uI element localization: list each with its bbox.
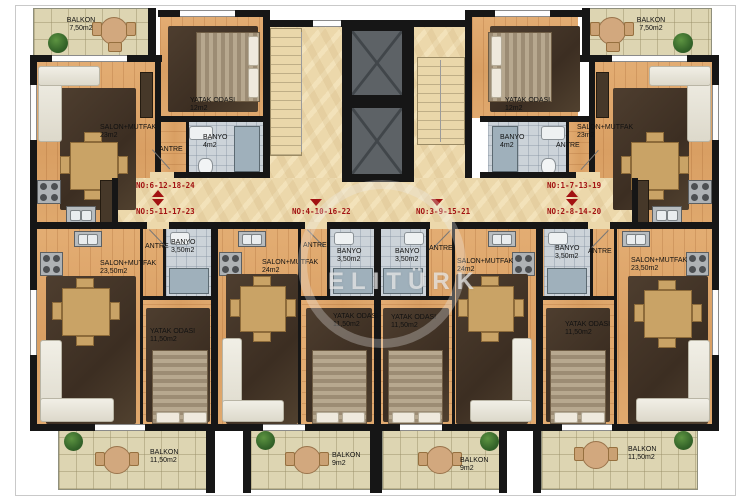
wall (540, 296, 616, 300)
window (400, 424, 442, 431)
window (95, 424, 145, 431)
b4-dining-table (644, 290, 692, 338)
label-tl-yatak: YATAK ODASI12m2 (190, 97, 235, 113)
label-b4-antre: ANTRE (588, 248, 612, 256)
wall (344, 98, 412, 103)
tl-kitchen-sink (66, 206, 96, 223)
door-gap-b1 (147, 222, 169, 229)
staircase-right (417, 57, 465, 145)
window (180, 10, 235, 17)
label-b2-salon: SALON+MUTFAK24m2 (262, 259, 318, 275)
unit-arrow-down (431, 199, 443, 206)
wall (112, 178, 118, 226)
tr-sofa-chaise (649, 66, 711, 86)
wall (155, 60, 161, 178)
tr-bath-sink (541, 126, 565, 140)
wall (243, 424, 251, 493)
label-b3-balkon: BALKON9m2 (460, 457, 488, 473)
b1-chair (110, 302, 120, 320)
b2-balcony-chair (319, 452, 329, 466)
label-b4-balkon: BALKON11,50m2 (628, 446, 656, 462)
wall (582, 8, 590, 60)
b1-chair (52, 302, 62, 320)
b1-kitchen-sink (74, 231, 102, 247)
tl-balcony-plant (48, 33, 68, 53)
label-b2-antre: ANTRE (303, 242, 327, 250)
wall (499, 424, 507, 493)
b3-stove (512, 252, 535, 276)
b1-bed-pillow (156, 412, 180, 423)
window (263, 424, 305, 431)
tr-balcony-chair (590, 22, 600, 36)
label-tr-banyo: BANYO4m2 (500, 134, 525, 150)
label-b3-yatak: YATAK ODASI11,50m2 (391, 314, 436, 330)
label-tl-salon: SALON+MUTFAK23m2 (100, 124, 156, 140)
label-b3-banyo: BANYO3,50m2 (395, 248, 420, 264)
wall (140, 229, 143, 429)
label-tl-antre: ANTRE (159, 146, 183, 154)
b1-sofa-chaise (40, 398, 114, 422)
b4-balcony-table (582, 441, 610, 469)
window (495, 10, 550, 17)
tr-kitchen-sink (652, 206, 682, 223)
label-tr-yatak: YATAK ODASI12m2 (505, 97, 550, 113)
b4-balcony-plant (674, 431, 693, 450)
wall (186, 120, 189, 176)
b2-balcony-plant (256, 431, 275, 450)
tr-bed-pillow (491, 36, 502, 66)
wall (536, 222, 543, 431)
label-b4-yatak: YATAK ODASI11,50m2 (565, 321, 610, 337)
b4-bed-pillow (554, 412, 578, 423)
wall (266, 20, 472, 27)
b3-balcony-plant (480, 432, 499, 451)
label-tl-banyo: BANYO4m2 (203, 134, 228, 150)
wall (632, 178, 638, 226)
unit-arrow-up (152, 190, 164, 197)
label-b1-antre: ANTRE (145, 243, 169, 251)
b1-shower (169, 268, 209, 294)
b4-kitchen-sink (622, 231, 650, 247)
door-gap-b2 (305, 222, 327, 229)
wall (465, 10, 472, 178)
tr-balcony-plant (673, 33, 693, 53)
tl-sofa-chaise (38, 66, 100, 86)
tl-bed-pillow (248, 68, 259, 98)
b2-bed-pillow (342, 412, 365, 423)
tl-tv-unit (140, 72, 153, 118)
elevator-shaft-2 (347, 103, 407, 179)
b4-bath-sink (548, 232, 568, 245)
tl-chair (60, 156, 70, 174)
unit-label-4-10-16-22: NO:4-10-16-22 (292, 207, 351, 216)
b2-chair (230, 299, 240, 317)
tr-chair (621, 156, 631, 174)
label-tr-salon: SALON+MUTFAK23m2 (577, 124, 633, 140)
b4-bed-pillow (581, 412, 605, 423)
label-tr-antre: ANTRE (556, 142, 580, 150)
b4-stove (686, 252, 709, 276)
wall (426, 229, 429, 297)
b2-chair (253, 276, 271, 286)
floor-plan: BALKON7,50m2 SALON+MUTFAK23m2 YATAK ODAS… (0, 0, 750, 500)
wall (342, 20, 349, 180)
b3-dining-table (468, 286, 514, 332)
b2-chair (253, 332, 271, 342)
unit-arrow-up (566, 190, 578, 197)
staircase-left (270, 28, 302, 156)
tl-stove (37, 180, 61, 204)
label-b4-salon: SALON+MUTFAK23,50m2 (631, 257, 687, 273)
tl-balcony-chair (108, 42, 122, 52)
wall (158, 172, 270, 178)
b2-sofa-chaise (222, 400, 284, 422)
label-b2-yatak: YATAK ODASI11,50m2 (333, 313, 378, 329)
tl-balcony-table (100, 17, 128, 45)
b2-chair (286, 299, 296, 317)
b3-sofa-chaise (470, 400, 532, 422)
wall (211, 222, 218, 431)
b1-bed-pillow (183, 412, 207, 423)
tr-balcony-chair (606, 42, 620, 52)
unit-arrow-down (566, 199, 578, 206)
wall (452, 229, 455, 429)
wall (480, 116, 590, 122)
b1-balcony-plant (64, 432, 83, 451)
unit-label-6-12-18-24: NO:6-12-18-24 (136, 181, 195, 190)
wall (206, 424, 215, 493)
b2-dining-table (240, 286, 286, 332)
wall (533, 424, 541, 493)
label-b2-balkon: BALKON9m2 (332, 452, 360, 468)
wall (140, 296, 214, 300)
label-b1-salon: SALON+MUTFAK23,50m2 (100, 260, 156, 276)
b4-balcony-chair (608, 447, 618, 461)
window (712, 85, 719, 140)
window (30, 290, 37, 355)
label-tl-balkon: BALKON7,50m2 (58, 17, 104, 33)
b1-dining-table (62, 288, 110, 336)
wall (163, 229, 166, 297)
label-b3-salon: SALON+MUTFAK24m2 (457, 258, 513, 274)
b2-balcony-table (293, 446, 321, 474)
staircase-left-rail (301, 32, 302, 152)
wall (614, 229, 617, 429)
label-b1-banyo: BANYO3,50m2 (171, 239, 196, 255)
label-b2-banyo: BANYO3,50m2 (337, 248, 362, 264)
tl-shower (234, 126, 260, 172)
b3-chair (481, 332, 499, 342)
tr-chair (646, 132, 664, 142)
b1-stove (40, 252, 63, 276)
tr-bed-pillow (491, 68, 502, 98)
wall (327, 229, 330, 297)
b4-chair (692, 304, 702, 322)
b4-chair (658, 338, 676, 348)
unit-label-5-11-17-23: NO:5-11-17-23 (136, 207, 195, 216)
b3-kitchen-sink (488, 231, 516, 247)
b3-chair (481, 276, 499, 286)
window (313, 20, 341, 27)
door-gap-tl (150, 172, 174, 178)
elevator-shaft-1 (347, 26, 407, 100)
label-b4-banyo: BANYO3,50m2 (555, 245, 580, 261)
b2-stove (219, 252, 242, 276)
staircase-right-rail (440, 60, 441, 142)
wall (300, 296, 376, 300)
unit-label-1-7-13-19: NO:1-7-13-19 (547, 181, 601, 190)
b3-balcony-table (426, 446, 454, 474)
b3-shower (383, 268, 423, 294)
window (30, 85, 37, 140)
tl-balcony-chair (126, 22, 136, 36)
wall (342, 176, 414, 182)
b3-bed-pillow (418, 412, 441, 423)
b1-chair (76, 336, 94, 346)
wall (370, 424, 382, 493)
label-b1-yatak: YATAK ODASI11,50m2 (150, 328, 195, 344)
b2-bed-pillow (316, 412, 339, 423)
door-gap-b4 (588, 222, 610, 229)
b1-chair (76, 278, 94, 288)
door-gap-tr (576, 172, 600, 178)
b4-balcony-chair (574, 447, 584, 461)
unit-label-2-8-14-20: NO:2-8-14-20 (547, 207, 601, 216)
b4-chair (634, 304, 644, 322)
tl-chair (118, 156, 128, 174)
b1-balcony-chair (95, 452, 105, 466)
window (712, 290, 719, 355)
window (562, 424, 612, 431)
label-b3-antre: ANTRE (429, 245, 453, 253)
window (52, 55, 127, 62)
tr-stove (688, 180, 712, 204)
b3-chair (514, 299, 524, 317)
wall (263, 10, 270, 178)
window (612, 55, 687, 62)
unit-arrow-down (152, 199, 164, 206)
b1-balcony-table (103, 446, 131, 474)
b4-chair (658, 280, 676, 290)
wall (148, 8, 156, 60)
b4-shower (547, 268, 587, 294)
b3-bath-sink (404, 232, 424, 245)
tl-bed-pillow (248, 36, 259, 66)
unit-label-3-9-15-21: NO:3-9-15-21 (416, 207, 470, 216)
wall (590, 229, 593, 297)
b3-chair (458, 299, 468, 317)
tr-balcony-table (598, 17, 626, 45)
wall (378, 296, 454, 300)
b3-bed-pillow (392, 412, 415, 423)
tr-tv-unit (596, 72, 609, 118)
b2-shower (333, 268, 373, 294)
b2-kitchen-sink (238, 231, 266, 247)
door-gap-b3 (430, 222, 452, 229)
b4-sofa-chaise (636, 398, 710, 422)
unit-arrow-down (310, 199, 322, 206)
b2-bath-sink (334, 232, 354, 245)
tr-chair (679, 156, 689, 174)
b2-balcony-chair (285, 452, 295, 466)
b3-balcony-chair (418, 452, 428, 466)
wall (158, 116, 268, 122)
b1-balcony-chair (129, 452, 139, 466)
label-tr-balkon: BALKON7,50m2 (628, 17, 674, 33)
label-b1-balkon: BALKON11,50m2 (150, 449, 178, 465)
wall (407, 20, 414, 180)
